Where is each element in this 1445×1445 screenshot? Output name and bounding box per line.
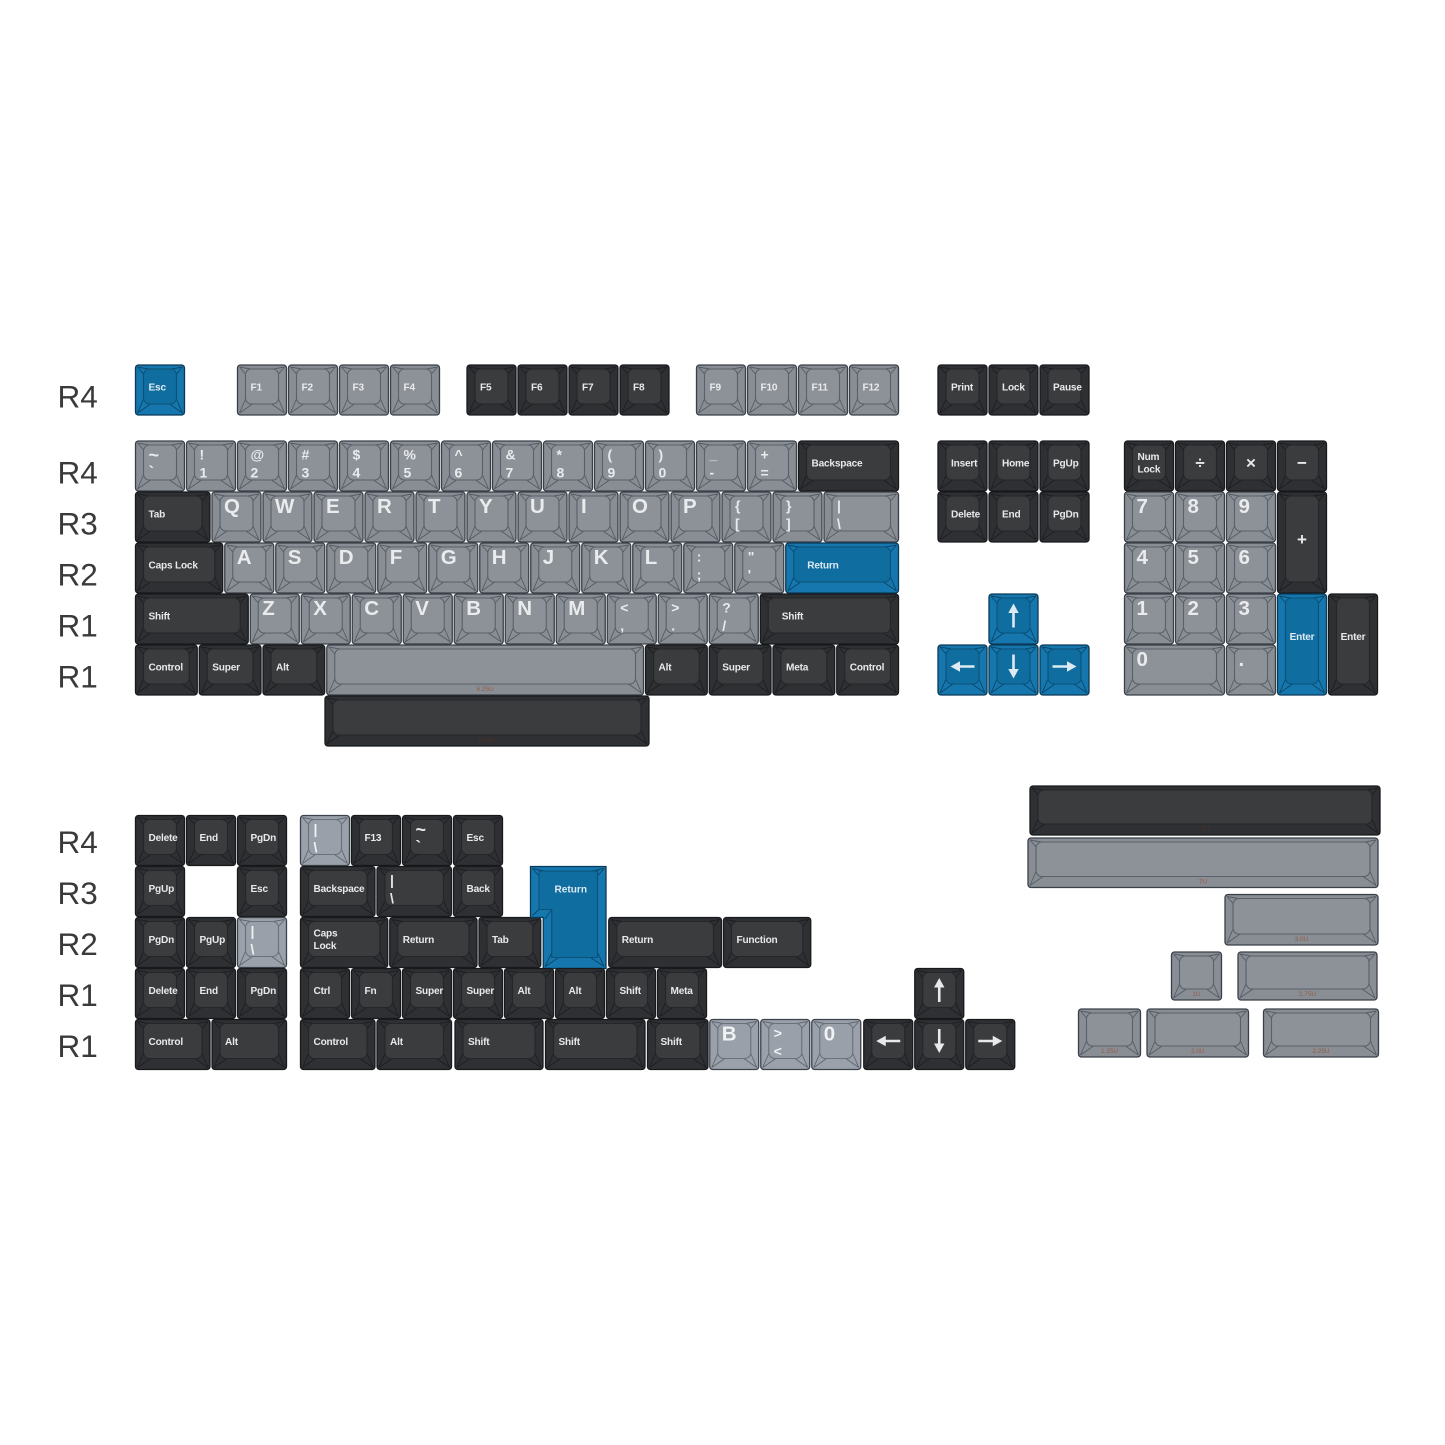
svg-text:O: O (632, 495, 648, 518)
svg-text:I: I (581, 495, 587, 518)
svg-text:\: \ (390, 890, 394, 906)
svg-text:Q: Q (224, 495, 240, 518)
svg-text:Alt: Alt (390, 1037, 404, 1048)
svg-text:Control: Control (149, 1037, 184, 1048)
svg-text:|: | (390, 872, 394, 888)
svg-text:5: 5 (404, 465, 412, 481)
svg-text:Alt: Alt (225, 1037, 239, 1048)
svg-text:Super: Super (212, 663, 240, 674)
svg-text:Enter: Enter (1341, 632, 1366, 643)
svg-text:<: < (774, 1043, 782, 1059)
svg-text:S: S (288, 546, 302, 569)
svg-text:2.75U: 2.75U (1299, 991, 1316, 998)
svg-text:F13: F13 (365, 833, 382, 844)
svg-text:1: 1 (200, 465, 208, 481)
svg-text:A: A (237, 546, 252, 569)
svg-text:F10: F10 (761, 383, 778, 394)
svg-text:R1: R1 (58, 608, 98, 644)
svg-text:Return: Return (622, 935, 653, 946)
svg-text:Shift: Shift (661, 1037, 683, 1048)
svg-text:R4: R4 (58, 824, 98, 860)
svg-text:Shift: Shift (559, 1037, 581, 1048)
svg-text:J: J (543, 546, 554, 569)
svg-text:+: + (1297, 530, 1307, 549)
svg-text:9: 9 (1239, 495, 1250, 518)
svg-text:,: , (620, 618, 624, 634)
svg-text:Alt: Alt (569, 986, 583, 997)
svg-text:Back: Back (467, 884, 491, 895)
svg-text:<: < (620, 600, 628, 616)
svg-text:8: 8 (1188, 495, 1199, 518)
svg-text:F3: F3 (353, 383, 365, 394)
svg-text:9: 9 (608, 465, 616, 481)
svg-text:End: End (200, 833, 218, 844)
svg-text:1: 1 (1137, 597, 1148, 620)
svg-text:Alt: Alt (659, 663, 673, 674)
svg-text:Y: Y (479, 495, 493, 518)
svg-text:N: N (517, 597, 532, 620)
svg-text:.: . (671, 618, 675, 634)
svg-text:@: @ (251, 447, 265, 463)
svg-text:?: ? (722, 600, 731, 616)
svg-text:Num: Num (1138, 452, 1160, 463)
svg-text:F11: F11 (812, 383, 829, 394)
svg-text:PgDn: PgDn (149, 935, 175, 946)
svg-text:End: End (200, 986, 218, 997)
svg-text:3.0U: 3.0U (1295, 936, 1309, 943)
svg-text:]: ] (786, 516, 791, 532)
svg-text:Insert: Insert (951, 459, 978, 470)
svg-text:|: | (251, 923, 255, 939)
svg-text:F1: F1 (251, 383, 263, 394)
svg-text:6.25U: 6.25U (477, 686, 494, 693)
svg-text:=: = (761, 465, 769, 481)
svg-text:^: ^ (455, 447, 463, 463)
svg-text:2: 2 (1188, 597, 1199, 620)
svg-text:G: G (441, 546, 457, 569)
svg-text:K: K (594, 546, 609, 569)
svg-text:Lock: Lock (1138, 465, 1161, 476)
svg-text:R2: R2 (58, 557, 98, 593)
svg-text:C: C (364, 597, 379, 620)
svg-text:Caps Lock: Caps Lock (149, 561, 199, 572)
svg-text:{: { (735, 498, 741, 514)
svg-text:Control: Control (850, 663, 885, 674)
svg-text:2: 2 (251, 465, 259, 481)
svg-text:\: \ (314, 839, 318, 855)
svg-text:F4: F4 (404, 383, 416, 394)
svg-text:Caps: Caps (314, 929, 338, 940)
svg-text:": " (748, 549, 755, 565)
svg-text:0: 0 (1137, 648, 1148, 671)
svg-text:PgDn: PgDn (251, 986, 277, 997)
svg-text:Backspace: Backspace (812, 459, 864, 470)
svg-text:F7: F7 (582, 383, 594, 394)
svg-text:H: H (492, 546, 507, 569)
svg-text:0: 0 (824, 1023, 835, 1046)
svg-text:Enter: Enter (1290, 632, 1315, 643)
svg-text:>: > (774, 1025, 782, 1041)
svg-text:Control: Control (149, 663, 184, 674)
svg-text:}: } (786, 498, 792, 514)
svg-text::: : (697, 549, 702, 565)
svg-text:R3: R3 (58, 506, 98, 542)
svg-text:3: 3 (1239, 597, 1250, 620)
svg-text:8: 8 (557, 465, 565, 481)
svg-text:;: ; (697, 567, 702, 583)
svg-text:2.0U: 2.0U (1191, 1048, 1205, 1055)
svg-text:Lock: Lock (314, 941, 337, 952)
svg-text:Shift: Shift (620, 986, 642, 997)
svg-text:/: / (722, 618, 726, 634)
svg-text:!: ! (200, 447, 205, 463)
svg-text:|: | (314, 821, 318, 837)
svg-text:Z: Z (262, 597, 275, 620)
svg-text:Backspace: Backspace (314, 884, 366, 895)
svg-text:V: V (415, 597, 429, 620)
svg-text:2.25U: 2.25U (1312, 1048, 1329, 1055)
svg-text:R2: R2 (58, 926, 98, 962)
svg-text:Super: Super (467, 986, 495, 997)
svg-text:D: D (339, 546, 354, 569)
svg-text:Delete: Delete (149, 986, 179, 997)
svg-text:L: L (645, 546, 658, 569)
svg-text:&: & (506, 447, 516, 463)
svg-text:PgDn: PgDn (251, 833, 277, 844)
svg-text:W: W (275, 495, 295, 518)
svg-text:7U: 7U (1199, 879, 1208, 886)
svg-text:Tab: Tab (149, 510, 166, 521)
svg-text:Return: Return (555, 885, 588, 896)
svg-text:Esc: Esc (149, 383, 167, 394)
svg-text:PgUp: PgUp (1053, 459, 1079, 470)
svg-text:R4: R4 (58, 455, 98, 491)
svg-text:_: _ (709, 447, 718, 463)
svg-text:F2: F2 (302, 383, 314, 394)
svg-text:R1: R1 (58, 659, 98, 695)
svg-text:7: 7 (506, 465, 514, 481)
svg-text:E: E (326, 495, 340, 518)
svg-text:Esc: Esc (467, 833, 485, 844)
svg-text:7U: 7U (1201, 826, 1210, 833)
svg-text:R4: R4 (58, 379, 98, 415)
svg-text:F9: F9 (710, 383, 722, 394)
svg-text:\: \ (837, 516, 841, 532)
svg-text:6: 6 (455, 465, 463, 481)
svg-text:+: + (761, 447, 769, 463)
svg-text:P: P (683, 495, 697, 518)
svg-text:5: 5 (1188, 546, 1199, 569)
svg-text:Return: Return (403, 935, 434, 946)
svg-text:*: * (557, 447, 563, 463)
svg-text:%: % (404, 447, 417, 463)
svg-text:R1: R1 (58, 977, 98, 1013)
svg-text:Alt: Alt (518, 986, 532, 997)
svg-text:>: > (671, 600, 679, 616)
svg-text:Return: Return (807, 561, 838, 572)
svg-text:7: 7 (1137, 495, 1148, 518)
svg-text:End: End (1002, 510, 1020, 521)
svg-text:4: 4 (1137, 546, 1149, 569)
svg-text:Home: Home (1002, 459, 1030, 470)
svg-text:6.25U: 6.25U (478, 737, 495, 744)
svg-text:\: \ (251, 941, 255, 957)
svg-text:|: | (837, 498, 841, 514)
svg-text:Alt: Alt (276, 663, 290, 674)
svg-text:Print: Print (951, 383, 974, 394)
svg-text:6: 6 (1239, 546, 1250, 569)
svg-text:×: × (1246, 454, 1256, 473)
svg-text:-: - (710, 465, 715, 481)
svg-text:#: # (302, 447, 310, 463)
svg-text:Lock: Lock (1002, 383, 1025, 394)
svg-text:Delete: Delete (951, 510, 981, 521)
svg-text:): ) (659, 447, 664, 463)
svg-text:PgUp: PgUp (200, 935, 226, 946)
svg-text:Ctrl: Ctrl (314, 986, 331, 997)
svg-text:1.25U: 1.25U (1101, 1048, 1118, 1055)
svg-text:F8: F8 (633, 383, 645, 394)
svg-text:F6: F6 (531, 383, 543, 394)
svg-text:F12: F12 (863, 383, 880, 394)
svg-text:F5: F5 (480, 383, 492, 394)
svg-text:`: ` (149, 463, 155, 482)
svg-text:R: R (377, 495, 392, 518)
svg-text:B: B (722, 1023, 737, 1046)
svg-text:B: B (466, 597, 481, 620)
svg-text:PgDn: PgDn (1053, 510, 1079, 521)
svg-text:.: . (1239, 648, 1245, 671)
svg-text:Pause: Pause (1053, 383, 1082, 394)
svg-text:1U: 1U (1192, 991, 1201, 998)
svg-text:Shift: Shift (149, 612, 171, 623)
svg-text:$: $ (353, 447, 361, 463)
svg-text:Meta: Meta (671, 986, 694, 997)
svg-text:3: 3 (302, 465, 310, 481)
svg-text:÷: ÷ (1195, 454, 1204, 473)
svg-text:Meta: Meta (786, 663, 809, 674)
svg-text:X: X (313, 597, 327, 620)
svg-text:Super: Super (416, 986, 444, 997)
svg-text:(: ( (608, 447, 613, 463)
svg-text:Super: Super (722, 663, 750, 674)
svg-text:[: [ (735, 516, 740, 532)
svg-text:Shift: Shift (468, 1037, 490, 1048)
svg-text:Function: Function (737, 935, 778, 946)
svg-text:4: 4 (353, 465, 361, 481)
svg-text:Fn: Fn (365, 986, 377, 997)
svg-text:`: ` (416, 837, 422, 856)
svg-text:Tab: Tab (492, 935, 509, 946)
svg-text:Delete: Delete (149, 833, 179, 844)
svg-text:R1: R1 (58, 1028, 98, 1064)
svg-text:0: 0 (659, 465, 667, 481)
svg-text:T: T (428, 495, 441, 518)
svg-text:PgUp: PgUp (149, 884, 175, 895)
svg-text:Control: Control (314, 1037, 349, 1048)
svg-text:Esc: Esc (251, 884, 269, 895)
svg-text:': ' (748, 567, 751, 583)
svg-text:M: M (568, 597, 585, 620)
svg-text:U: U (530, 495, 545, 518)
svg-text:−: − (1297, 454, 1307, 473)
svg-text:F: F (390, 546, 403, 569)
svg-text:R3: R3 (58, 875, 98, 911)
svg-text:Shift: Shift (782, 612, 804, 623)
